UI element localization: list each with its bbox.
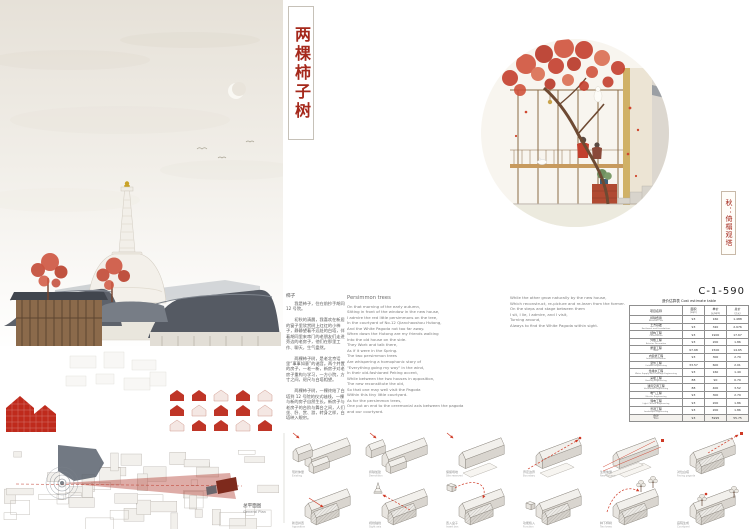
cost-cell-area: 93 xyxy=(682,323,704,331)
process-diagram-cell: 对位白塔Facing pagoda xyxy=(677,432,743,477)
diagram-caption-en: Courtyard xyxy=(677,524,690,528)
diagram-caption-zh: 拆除加建 xyxy=(369,469,381,474)
cost-cell-area: 88 xyxy=(682,384,704,392)
poem-english-column-2: While the other grow naturally by the ne… xyxy=(510,295,632,328)
cost-cell-unit: 160 xyxy=(704,369,726,377)
process-diagram-cell: 视线轴线Sight axis xyxy=(369,483,427,529)
cost-cell-total: 1.86 xyxy=(726,406,748,414)
foreground-facades xyxy=(150,332,281,348)
process-diagram-cell: 庭院生成Courtyard xyxy=(677,486,738,528)
col-item: 项目名称 xyxy=(631,309,681,313)
cost-cell-area: 93 xyxy=(682,354,704,362)
poem-chinese: 柿子 我是柿子，住在前抄手胡同 12 号院。 初秋的清晨，我喜欢在新居的窗子里欣… xyxy=(286,294,347,421)
poem-english-lines-1: On that morning of the early autumn, Sit… xyxy=(347,304,509,415)
cost-cell-total: 2.79 xyxy=(726,354,748,362)
cost-cell-unit: 600 xyxy=(704,361,726,369)
diagram-caption-zh: 功能植入 xyxy=(523,520,535,525)
process-diagram-cell: 界定边界Boundary xyxy=(523,437,581,478)
poem-chinese-text: 我是柿子，住在前抄手胡同 12 号院。 初秋的清晨，我喜欢在新居的窗子里欣赏树上… xyxy=(286,301,347,421)
presentation-board: 两棵柿子树 xyxy=(0,0,750,529)
drawing-code: C-1-590 xyxy=(698,286,745,297)
cost-cell-area: 93 xyxy=(682,406,704,414)
red-arrow xyxy=(293,433,299,438)
massing-volume xyxy=(459,438,504,469)
insert-box-volume xyxy=(447,484,456,492)
cost-table-row: 给排水工程Water Supply and Drainage Engineeri… xyxy=(630,369,749,377)
process-diagram-strip: 现状体量Existing拆除加建Demolition保留场地Site reser… xyxy=(283,427,750,529)
cost-cell-area: 93 xyxy=(682,414,704,422)
insert-box-volume xyxy=(526,502,535,510)
pagoda-render-illustration xyxy=(0,0,283,440)
cost-cell-unit: 300 xyxy=(704,391,726,399)
cost-table-row: 室外工程Outdoor Engineering33.576002.01 xyxy=(630,361,749,369)
cost-table-row: 电气工程Electric Engineering933002.79 xyxy=(630,391,749,399)
cost-table-row: 结构工程Construction93190017.67 xyxy=(630,331,749,339)
red-arrow xyxy=(447,433,453,438)
cost-table-row: 屋面工程Roof97.68150014.65 xyxy=(630,346,749,354)
diagram-caption-en: Apposition xyxy=(292,524,306,528)
site-plan-label-en: General Plan xyxy=(243,510,266,514)
cost-table-row: 拆除费用Removal Cost931601.488 xyxy=(630,316,749,324)
diagram-caption-zh: 视线轴线 xyxy=(369,520,381,525)
diagram-caption-zh: 界定边界 xyxy=(523,469,535,474)
cost-cell-unit: 200 xyxy=(704,399,726,407)
poem-chinese-heading: 柿子 xyxy=(286,294,347,300)
diagram-caption-en: Function xyxy=(523,524,534,528)
red-arrow xyxy=(370,433,376,438)
cost-cell-total: 2.976 xyxy=(726,323,748,331)
season-caption-box: 秋：倚榻观塔 xyxy=(721,191,736,255)
cost-cell-total: 2.01 xyxy=(726,361,748,369)
tree-mini-icon xyxy=(649,476,658,488)
diagram-caption-zh: 新旧并置 xyxy=(292,520,304,525)
page-title: 两棵柿子树 xyxy=(293,26,309,121)
diagram-caption-en: Facing pagoda xyxy=(677,473,696,477)
cost-cell-unit: 90 xyxy=(704,376,726,384)
red-marker xyxy=(661,439,664,442)
gold-band xyxy=(623,68,630,206)
cost-cell-unit: 200 xyxy=(704,338,726,346)
process-diagram-cell: 现状体量Existing xyxy=(292,433,350,477)
diagram-caption-zh: 现状体量 xyxy=(292,469,304,474)
poem-english-column-1: Persimmon trees On that morning of the e… xyxy=(347,295,509,414)
diagram-caption-en: Boundary xyxy=(523,473,536,477)
cost-cell-area: 88 xyxy=(682,376,704,384)
poem-english-heading: Persimmon trees xyxy=(347,295,509,301)
main-title-box: 两棵柿子树 xyxy=(288,6,314,140)
sight-line-arrow xyxy=(455,483,484,498)
diagram-caption-zh: 置入盒子 xyxy=(446,520,458,525)
cost-table-row: 内装修工程Interior Decoration933002.79 xyxy=(630,354,749,362)
diagram-caption-en: Existing xyxy=(292,473,302,477)
diagram-caption-en: New volume xyxy=(600,473,616,477)
cost-cell-area: 93 xyxy=(682,391,704,399)
diagram-caption-en: Two trees xyxy=(600,524,613,528)
cost-cell-total: 0.79 xyxy=(726,376,748,384)
gold-finial xyxy=(125,181,129,185)
poem-english-lines-2: While the other grow naturally by the ne… xyxy=(510,295,632,328)
cost-cell-area: 93 xyxy=(682,331,704,339)
pagoda-mini-icon xyxy=(374,483,382,494)
cost-cell-total: 1.86 xyxy=(726,338,748,346)
cost-cell-unit: 200 xyxy=(704,406,726,414)
diagram-caption-zh: 对位白塔 xyxy=(677,469,689,474)
diagram-caption-zh: 庭院生成 xyxy=(677,520,689,525)
cost-cell-total: 1.49 xyxy=(726,369,748,377)
red-marker xyxy=(579,437,582,440)
process-diagram-cell: 保留场地Site reserved xyxy=(446,433,504,477)
process-diagram-cell: 拆除加建Demolition xyxy=(366,433,427,477)
autumn-section-illustration xyxy=(480,38,670,228)
cost-cell-area: 93 xyxy=(682,369,704,377)
cost-cell-unit: 1500 xyxy=(704,346,726,354)
process-diagram-cell: 生成体量New volume xyxy=(600,438,664,478)
cost-cell-total: 1.488 xyxy=(726,316,748,324)
cost-cell-total: 55.75 xyxy=(726,414,748,422)
cost-cell-unit: 5995 xyxy=(704,414,726,422)
diagram-caption-en: Site reserved xyxy=(446,473,463,477)
process-diagram-cell: 种下柿树Two trees xyxy=(600,476,658,528)
diagram-caption-zh: 种下柿树 xyxy=(600,520,612,525)
cost-table-row: 弱电工程Light Current Engineering932001.86 xyxy=(630,399,749,407)
cost-cell-total: 14.65 xyxy=(726,346,748,354)
cost-cell-total: 3.52 xyxy=(726,384,748,392)
wooden-lattice-house xyxy=(10,292,108,346)
cost-cell-unit: 400 xyxy=(704,384,726,392)
cost-cell-area: 93 xyxy=(682,338,704,346)
cost-table-header-row: 项目名称 面积 (sqm) 单价 (元/sqm) 总价 (万元) xyxy=(630,306,749,316)
process-diagram-cell: 新旧并置Apposition xyxy=(292,489,350,529)
cost-cell-unit: 1900 xyxy=(704,331,726,339)
cost-cell-unit: 160 xyxy=(704,316,726,324)
cost-cell-area: 93 xyxy=(682,316,704,324)
cost-total-row: 合计Total93599555.75 xyxy=(630,414,749,422)
cost-cell-unit: 320 xyxy=(704,323,726,331)
cost-table-row: 采暖工程Heating Engineering88900.79 xyxy=(630,376,749,384)
site-plan-label-zh: 总平面图 xyxy=(243,502,262,509)
cost-cell-total: 2.79 xyxy=(726,391,748,399)
cost-cell-area: 93 xyxy=(682,399,704,407)
diagram-caption-en: Demolition xyxy=(369,473,383,477)
red-marker xyxy=(705,493,708,496)
cost-table-title: 造价估算表 Cost estimate table xyxy=(629,299,749,304)
cost-table-row: 景观工程Landscape Engineering932001.86 xyxy=(630,406,749,414)
process-diagram-cell: 功能植入Function xyxy=(523,489,581,529)
diagram-caption-zh: 保留场地 xyxy=(446,469,458,474)
cost-cell-total: 1.86 xyxy=(726,399,748,407)
massing-volume xyxy=(366,440,385,458)
cost-cell-area: 33.57 xyxy=(682,361,704,369)
cost-table-row: 土方基础Earthwork and Foundations933202.976 xyxy=(630,323,749,331)
diagram-caption-en: Sight axis xyxy=(369,524,382,528)
cost-cell-total: 17.67 xyxy=(726,331,748,339)
process-diagram-cell: 置入盒子Insert box xyxy=(446,483,504,529)
season-caption: 秋：倚榻观塔 xyxy=(725,199,732,247)
cost-table-row: 通风空调工程Ventilation Engineering884003.52 xyxy=(630,384,749,392)
upper-floor-slab xyxy=(510,164,623,168)
cost-estimate-table: 造价估算表 Cost estimate table 项目名称 面积 (sqm) … xyxy=(629,299,749,422)
site-plan: 总平面图 General Plan xyxy=(0,437,285,529)
diagram-caption-en: Insert box xyxy=(446,524,459,528)
cost-table-row: 外檐工程Exterior Decoration932001.86 xyxy=(630,338,749,346)
diagram-caption-zh: 生成体量 xyxy=(600,469,612,474)
red-marker xyxy=(740,432,743,435)
cost-cell-unit: 300 xyxy=(704,354,726,362)
cost-cell-area: 97.68 xyxy=(682,346,704,354)
